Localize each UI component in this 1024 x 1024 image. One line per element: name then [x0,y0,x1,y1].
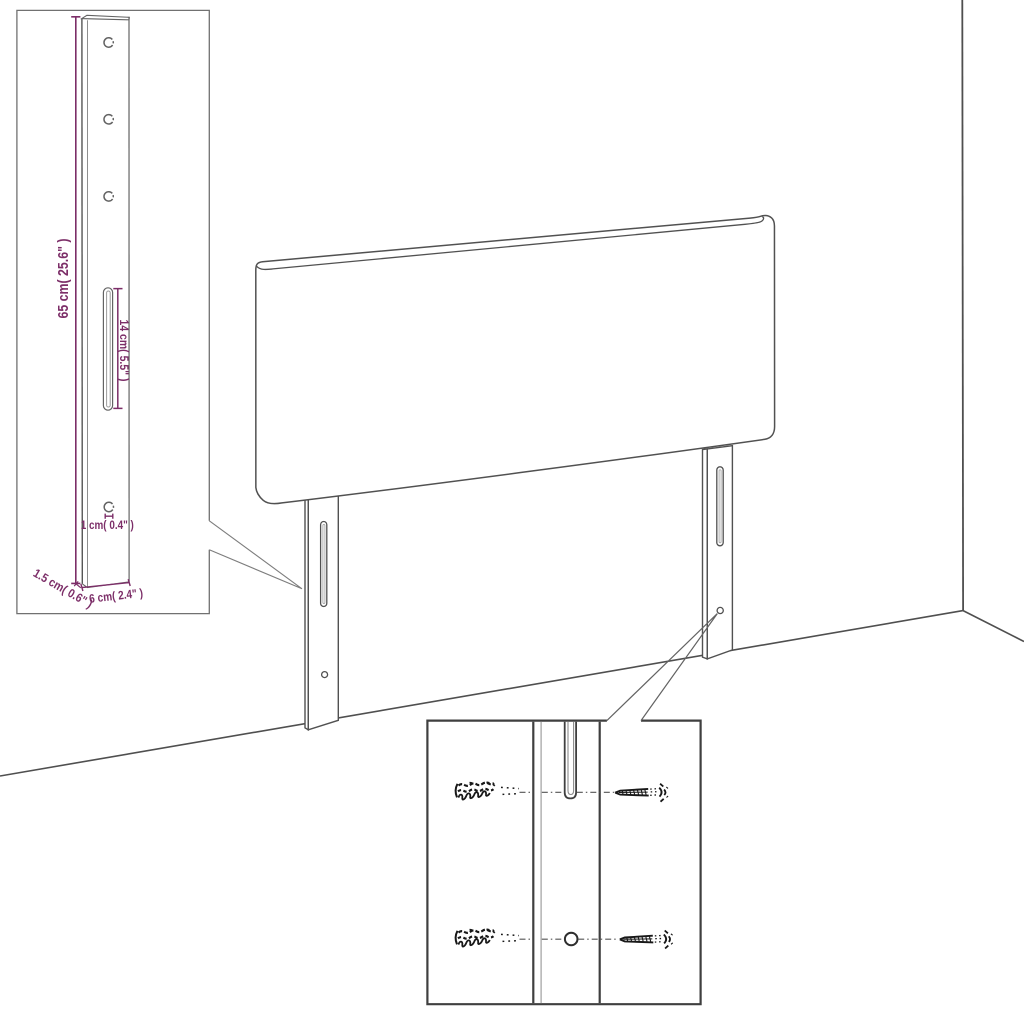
svg-text:14 cm( 5.5" ): 14 cm( 5.5" ) [117,320,131,382]
svg-text:65 cm( 25.6" ): 65 cm( 25.6" ) [56,238,72,318]
svg-text:1 cm( 0.4" ): 1 cm( 0.4" ) [81,520,134,532]
